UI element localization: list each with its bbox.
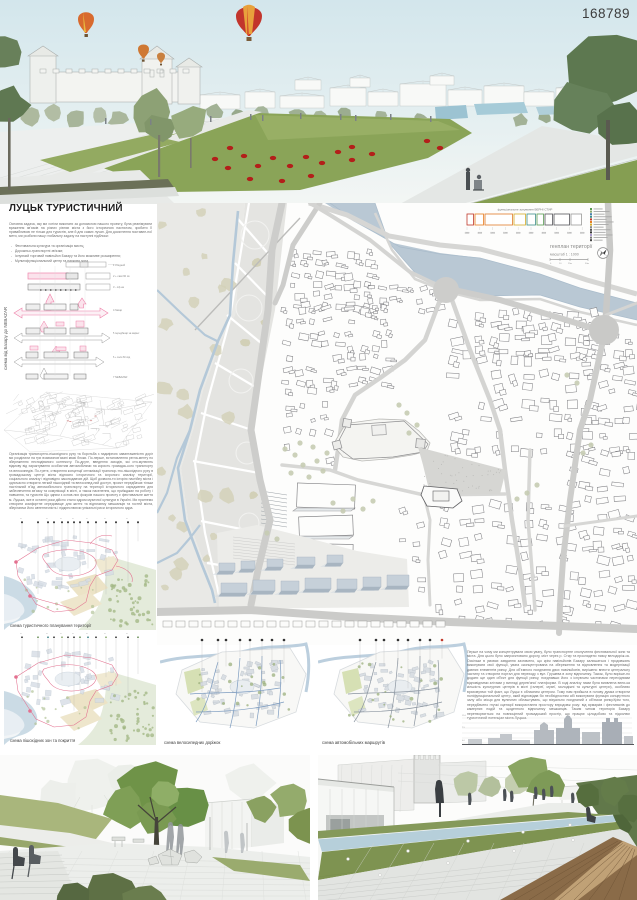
svg-text:▪▪▪: ▪▪▪: [72, 634, 74, 636]
svg-text:1 схидний: 1 схидний: [113, 263, 126, 267]
svg-text:▪▪▪: ▪▪▪: [20, 519, 22, 521]
svg-text:▪▪▪: ▪▪▪: [72, 519, 74, 521]
svg-text:▪▪▪: ▪▪▪: [86, 519, 88, 521]
svg-text:5 передбазар за маркет: 5 передбазар за маркет: [113, 332, 140, 335]
svg-text:▪▪▪: ▪▪▪: [104, 519, 106, 521]
svg-text:3 - оф на: 3 - оф на: [113, 285, 124, 289]
svg-text:▪▪▪: ▪▪▪: [60, 634, 62, 636]
svg-text:▪▪▪: ▪▪▪: [86, 634, 88, 636]
svg-text:▪▪▪: ▪▪▪: [126, 519, 128, 521]
svg-text:▪▪▪: ▪▪▪: [104, 634, 106, 636]
svg-text:масштаб 1 : 1000: масштаб 1 : 1000: [550, 253, 579, 257]
svg-text:схема від Базару до NEBAZAR: схема від Базару до NEBAZAR: [3, 307, 8, 370]
svg-text:15.0: 15.0: [462, 715, 467, 717]
svg-text:▪▪▪: ▪▪▪: [20, 634, 22, 636]
svg-text:▪▪▪: ▪▪▪: [46, 519, 48, 521]
svg-text:функціональне зонування ВЕРНІ: функціональне зонування ВЕРНІ СТИР: [498, 208, 553, 212]
svg-text:2 + самі 60 хв: 2 + самі 60 хв: [113, 274, 130, 278]
svg-text:50м: 50м: [585, 263, 589, 265]
svg-text:▪▪▪: ▪▪▪: [126, 634, 128, 636]
svg-text:генплан території: генплан території: [550, 244, 593, 250]
svg-text:6 + сали 60 хвд: 6 + сали 60 хвд: [113, 356, 131, 359]
svg-text:25м: 25м: [568, 263, 572, 265]
svg-text:▪▪▪: ▪▪▪: [46, 634, 48, 636]
svg-text:▪▪▪: ▪▪▪: [60, 519, 62, 521]
svg-text:4 базар: 4 базар: [113, 308, 123, 312]
svg-text:0.0: 0.0: [462, 740, 466, 742]
